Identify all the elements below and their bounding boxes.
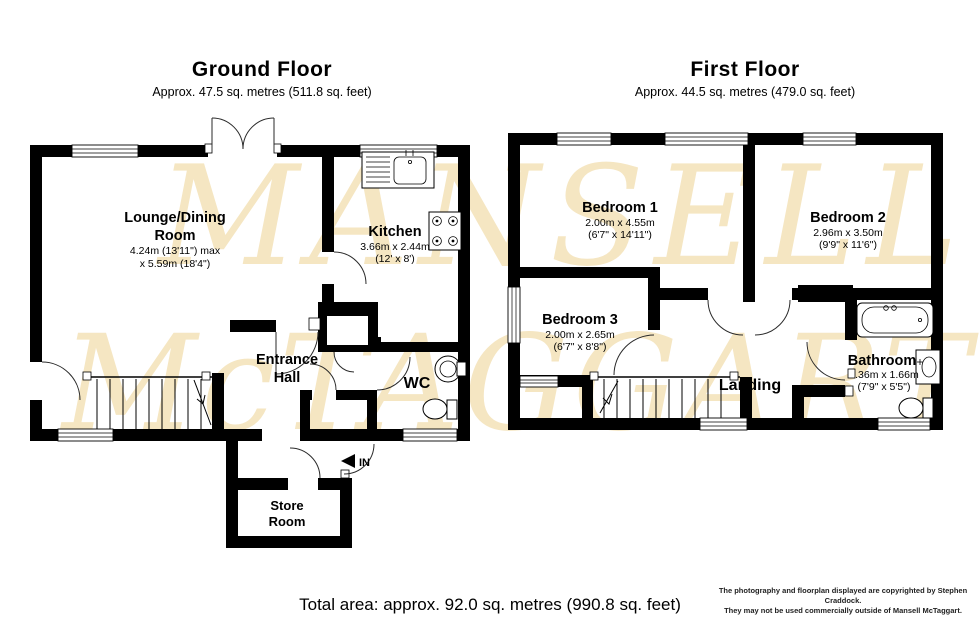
gf-windows (58, 145, 457, 441)
svg-text:x 5.59m (18'4"): x 5.59m (18'4") (140, 258, 211, 270)
svg-text:Bedroom 3: Bedroom 3 (542, 312, 618, 328)
total-area-text: Total area: approx. 92.0 sq. metres (990… (290, 595, 690, 615)
window-icon (665, 133, 748, 145)
copyright-text: The photography and floorplan displayed … (710, 586, 976, 616)
door-arc (290, 448, 320, 478)
window-icon (520, 376, 558, 387)
entrance-hall-label: Entrance Hall (256, 352, 318, 386)
svg-text:Bedroom 2: Bedroom 2 (810, 210, 886, 226)
first-floor-plan: Bedroom 1 2.00m x 4.55m (6'7" x 14'11") … (500, 125, 950, 440)
door-arc (334, 252, 366, 284)
french-doors-icon (205, 118, 281, 153)
ground-floor-title: Ground Floor (62, 58, 462, 82)
door-arc (334, 352, 354, 372)
gf-stairs (83, 372, 212, 429)
kitchen-label: Kitchen 3.66m x 2.44m (12' x 8') (360, 224, 430, 265)
svg-text:Bedroom 1: Bedroom 1 (582, 200, 658, 216)
door-arc (807, 342, 845, 380)
ground-floor-subtitle: Approx. 47.5 sq. metres (511.8 sq. feet) (62, 85, 462, 99)
window-icon (803, 133, 856, 145)
svg-text:(12' x 8'): (12' x 8') (375, 253, 415, 265)
svg-text:Entrance: Entrance (256, 352, 318, 368)
cooktop-icon (429, 212, 461, 250)
svg-text:Bathroom: Bathroom (848, 353, 916, 369)
first-floor-subtitle: Approx. 44.5 sq. metres (479.0 sq. feet) (545, 85, 945, 99)
door-jamb (848, 369, 855, 378)
svg-text:(9'9" x 11'6"): (9'9" x 11'6") (819, 239, 877, 251)
window-icon (508, 287, 520, 343)
svg-text:2.36m x 1.66m: 2.36m x 1.66m (849, 369, 919, 381)
svg-text:Lounge/Dining: Lounge/Dining (124, 210, 225, 226)
svg-text:(6'7" x 14'11"): (6'7" x 14'11") (588, 229, 652, 241)
door-arc (614, 335, 654, 375)
svg-text:2.00m x 4.55m: 2.00m x 4.55m (585, 217, 655, 229)
svg-text:Hall: Hall (274, 370, 301, 386)
stairs-direction-arrow (194, 380, 211, 425)
svg-text:2.96m x 3.50m: 2.96m x 3.50m (813, 227, 883, 239)
window-icon (72, 145, 138, 157)
svg-text:Kitchen: Kitchen (368, 224, 421, 240)
bathroom-toilet-icon (899, 398, 933, 418)
bedroom3-label: Bedroom 3 2.00m x 2.65m (6'7" x 8'8") (542, 312, 618, 353)
window-icon (58, 429, 113, 441)
lounge-label: Lounge/Dining Room 4.24m (13'11") max x … (124, 210, 225, 270)
svg-text:Room: Room (269, 514, 306, 529)
svg-text:2.00m x 2.65m: 2.00m x 2.65m (545, 329, 615, 341)
gf-exterior-walls (30, 145, 470, 441)
in-label: IN (359, 457, 370, 469)
copyright-line1: The photography and floorplan displayed … (710, 586, 976, 606)
bath-icon (857, 303, 933, 337)
floorplan-page: MANSELL McTAGGART Ground Floor Approx. 4… (0, 0, 980, 618)
svg-text:(6'7" x 8'8"): (6'7" x 8'8") (554, 341, 607, 353)
bathroom-label: Bathroom 2.36m x 1.66m (7'9" x 5'5") (848, 353, 919, 393)
first-floor-title: First Floor (545, 58, 945, 82)
door-jamb (845, 386, 853, 396)
door-arc (42, 362, 80, 400)
svg-text:Store: Store (270, 498, 303, 513)
ff-stairs (590, 372, 740, 418)
store-room-label: Store Room (269, 498, 306, 529)
landing-label: Landing (719, 377, 781, 394)
bedroom2-label: Bedroom 2 2.96m x 3.50m (9'9" x 11'6") (810, 210, 886, 251)
svg-text:4.24m (13'11") max: 4.24m (13'11") max (130, 245, 221, 257)
svg-text:(7'9" x 5'5"): (7'9" x 5'5") (858, 381, 911, 393)
bedroom1-label: Bedroom 1 2.00m x 4.55m (6'7" x 14'11") (582, 200, 658, 241)
window-icon (403, 429, 457, 441)
wc-label: WC (404, 375, 431, 392)
window-icon (878, 418, 930, 430)
svg-text:Room: Room (154, 228, 195, 244)
window-icon (700, 418, 747, 430)
door-arc (755, 300, 790, 335)
ground-floor-plan: IN Lounge/Dining Room 4.24m (13'11") max… (25, 105, 485, 565)
ground-floor-title-block: Ground Floor Approx. 47.5 sq. metres (51… (62, 58, 462, 99)
wc-toilet-icon (423, 399, 457, 419)
first-floor-title-block: First Floor Approx. 44.5 sq. metres (479… (545, 58, 945, 99)
svg-text:3.66m x 2.44m: 3.66m x 2.44m (360, 241, 430, 253)
entrance-arrow-icon: IN (341, 454, 370, 469)
door-arc (708, 300, 743, 335)
copyright-line2: They may not be used commercially outsid… (710, 606, 976, 616)
stairs-direction-arrow (600, 381, 618, 413)
bathroom-basin-icon (916, 350, 940, 384)
kitchen-sink-icon (362, 150, 434, 188)
gf-chimney-recess (309, 316, 368, 345)
gf-interior-walls (212, 157, 458, 548)
window-icon (557, 133, 611, 145)
